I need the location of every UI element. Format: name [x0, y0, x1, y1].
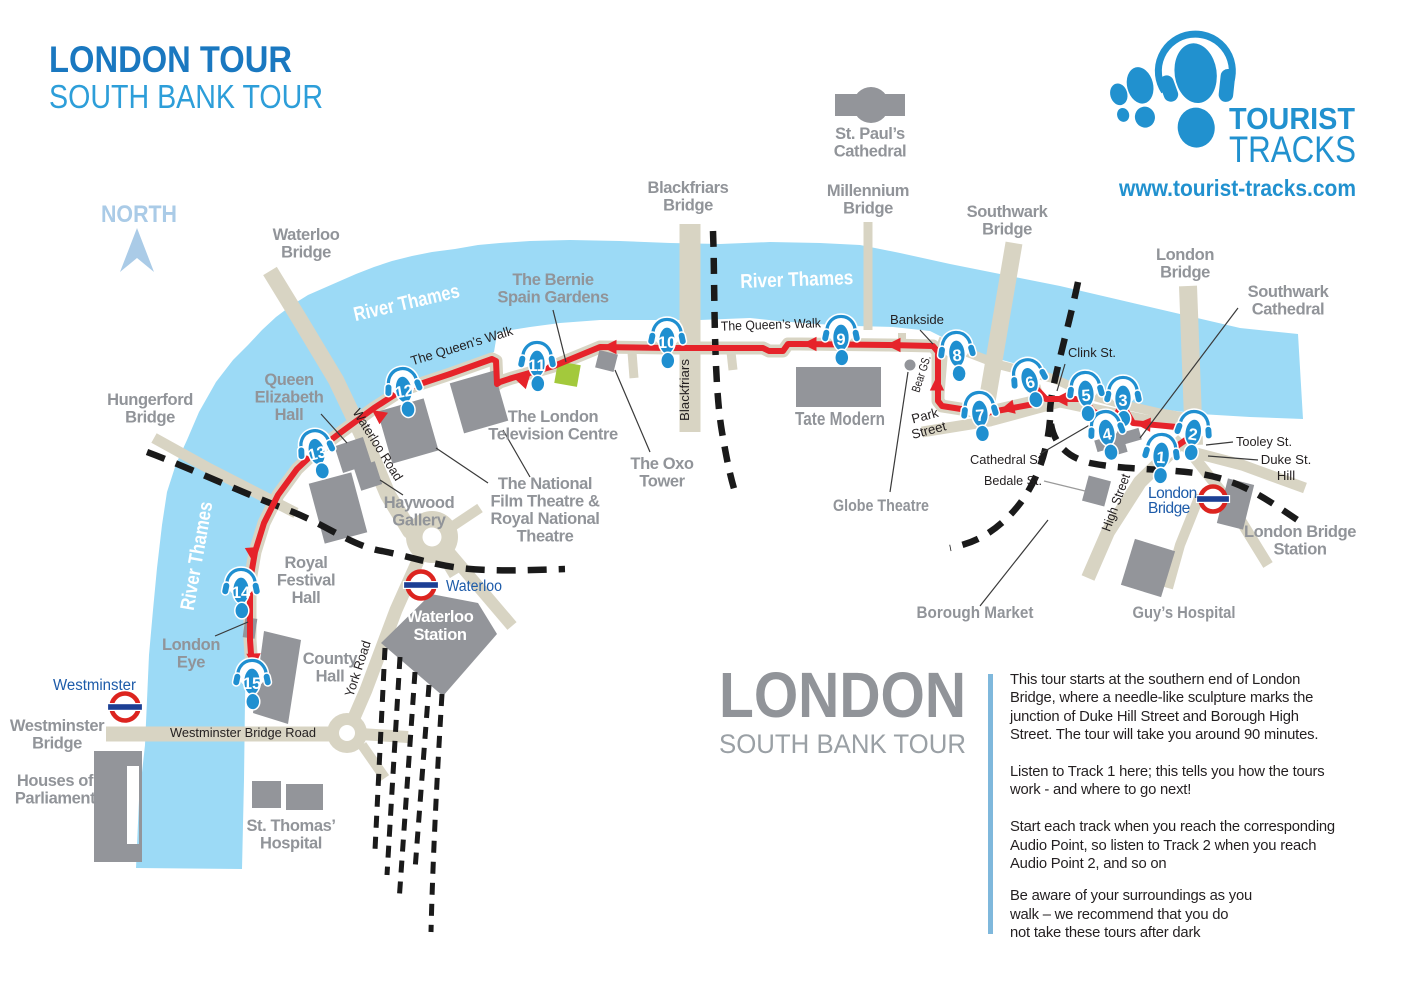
svg-text:The OxoTower: The OxoTower	[630, 455, 694, 491]
svg-text:LondonBridge: LondonBridge	[1156, 246, 1214, 282]
svg-text:12: 12	[394, 381, 415, 402]
svg-text:1: 1	[1156, 449, 1166, 468]
svg-text:11: 11	[528, 357, 545, 375]
svg-text:7: 7	[975, 407, 986, 426]
svg-text:3: 3	[1118, 392, 1127, 410]
svg-text:NORTH: NORTH	[101, 201, 177, 228]
svg-text:14: 14	[232, 584, 251, 602]
svg-text:LONDON: LONDON	[719, 659, 966, 731]
svg-text:LONDON TOUR: LONDON TOUR	[49, 39, 292, 80]
svg-text:8: 8	[952, 347, 962, 366]
svg-text:HaywoodGallery: HaywoodGallery	[384, 494, 455, 530]
svg-text:Blackfriars: Blackfriars	[677, 359, 692, 421]
svg-text:5: 5	[1081, 387, 1091, 406]
svg-text:The BernieSpain Gardens: The BernieSpain Gardens	[497, 271, 608, 307]
svg-text:LondonBridge: LondonBridge	[1148, 485, 1197, 517]
svg-text:Bankside: Bankside	[890, 312, 944, 327]
svg-text:Borough Market: Borough Market	[917, 604, 1034, 622]
svg-text:Cathedral St.: Cathedral St.	[970, 452, 1045, 467]
svg-text:SOUTH BANK TOUR: SOUTH BANK TOUR	[49, 78, 323, 115]
svg-text:Clink St.: Clink St.	[1068, 345, 1116, 360]
svg-text:9: 9	[836, 331, 845, 349]
svg-text:10: 10	[658, 334, 676, 352]
svg-text:WaterlooBridge: WaterlooBridge	[273, 226, 340, 262]
svg-text:SouthwarkCathedral: SouthwarkCathedral	[1248, 283, 1330, 319]
svg-text:WaterlooStation: WaterlooStation	[407, 608, 474, 644]
svg-text:Westminster: Westminster	[53, 677, 136, 694]
svg-text:www.tourist-tracks.com: www.tourist-tracks.com	[1118, 175, 1356, 201]
svg-text:St. Paul’sCathedral: St. Paul’sCathedral	[834, 125, 907, 161]
svg-text:Tate Modern: Tate Modern	[795, 409, 885, 429]
svg-text:River Thames: River Thames	[740, 267, 854, 293]
svg-text:Tooley St.: Tooley St.	[1236, 434, 1292, 449]
svg-text:Westminster Bridge Road: Westminster Bridge Road	[170, 725, 316, 740]
svg-text:Houses ofParliament: Houses ofParliament	[15, 772, 96, 808]
svg-text:Waterloo: Waterloo	[446, 578, 502, 595]
svg-text:Guy’s Hospital: Guy’s Hospital	[1133, 604, 1236, 622]
svg-text:15: 15	[243, 675, 261, 693]
svg-text:SOUTH BANK TOUR: SOUTH BANK TOUR	[719, 729, 966, 759]
svg-text:Globe Theatre: Globe Theatre	[833, 497, 929, 515]
svg-text:Bedale St.: Bedale St.	[984, 473, 1042, 488]
svg-text:TRACKS: TRACKS	[1229, 129, 1356, 170]
